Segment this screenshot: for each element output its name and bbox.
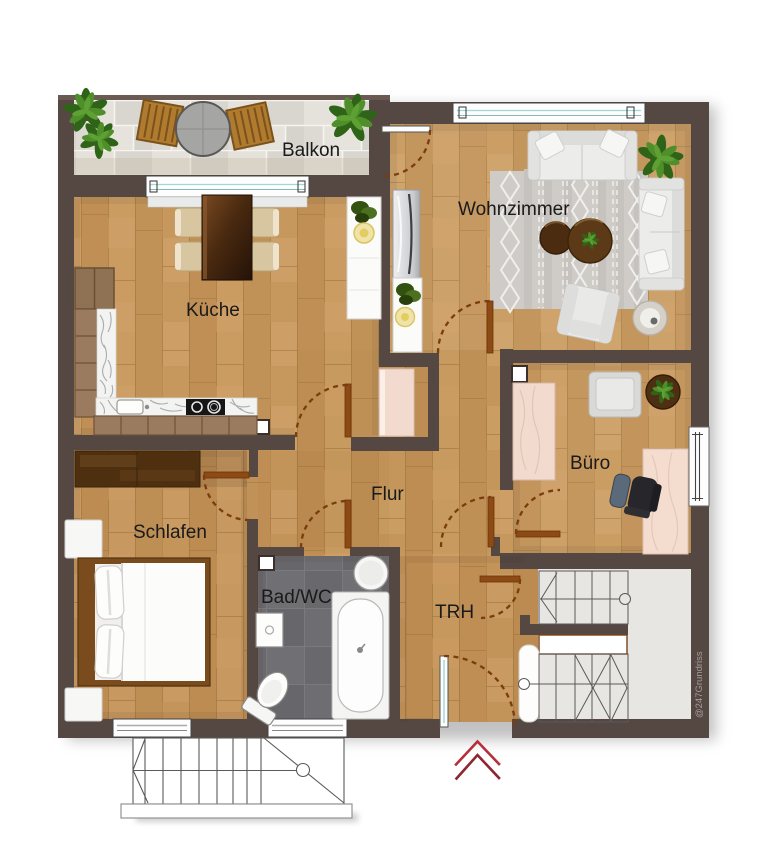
svg-text:@247Grundriss: @247Grundriss	[694, 651, 705, 718]
svg-text:Büro: Büro	[570, 453, 610, 474]
svg-text:Flur: Flur	[371, 484, 404, 505]
svg-text:Bad/WC: Bad/WC	[261, 587, 332, 608]
svg-text:TRH: TRH	[435, 602, 474, 623]
svg-text:Schlafen: Schlafen	[133, 522, 207, 543]
svg-text:Wohnzimmer: Wohnzimmer	[458, 199, 570, 220]
svg-text:Balkon: Balkon	[282, 140, 340, 161]
svg-text:Küche: Küche	[186, 300, 240, 321]
